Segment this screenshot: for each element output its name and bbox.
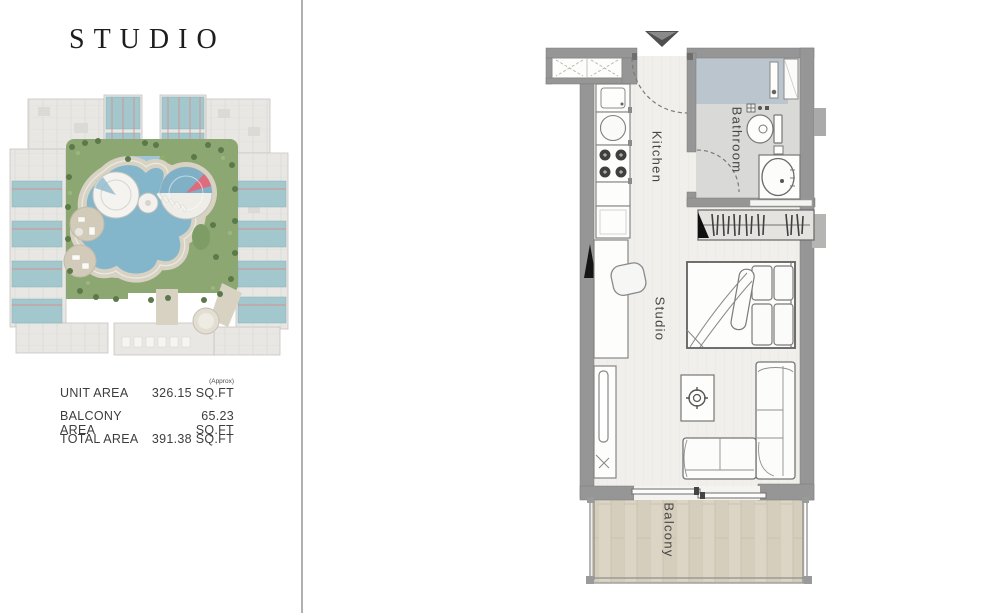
kitchen-counter [596, 84, 632, 238]
entry-closet [552, 58, 622, 78]
area-row-total: TOTAL AREA 391.38 SQ.FT [60, 432, 234, 447]
room-label-studio: Studio [653, 297, 668, 342]
site-landscape [64, 138, 242, 347]
area-row-balcony: BALCONY AREA 65.23 SQ.FT [60, 409, 234, 424]
shower-fixture [770, 62, 778, 98]
stove [596, 145, 630, 182]
room-label-bathroom: Bathroom [730, 107, 745, 174]
pillow [752, 266, 772, 300]
balcony-floor [592, 498, 804, 582]
panel-divider [301, 0, 303, 613]
site-plan-image [8, 93, 292, 357]
wash-basin [759, 155, 800, 199]
page-title: STUDIO [69, 24, 226, 56]
area-value: 391.38 SQ.FT [152, 432, 234, 446]
sliding-door [632, 486, 766, 500]
floor-plan: Kitchen Bathroom Studio Balcony [540, 25, 840, 600]
area-table: (Approx) UNIT AREA 326.15 SQ.FT BALCONY … [60, 386, 234, 455]
wardrobe [698, 210, 814, 240]
room-label-balcony: Balcony [662, 502, 677, 557]
area-row-unit: (Approx) UNIT AREA 326.15 SQ.FT [60, 386, 234, 401]
area-label: TOTAL AREA [60, 432, 139, 446]
bed [687, 262, 795, 348]
area-label: UNIT AREA [60, 386, 128, 400]
entry-arrow-icon [645, 31, 679, 47]
coffee-table [681, 375, 714, 421]
area-value: 326.15 SQ.FT [152, 386, 234, 400]
room-label-kitchen: Kitchen [650, 131, 665, 183]
area-note-approx: (Approx) [209, 378, 234, 385]
pillow [752, 304, 772, 345]
tv-console [594, 366, 616, 478]
desk [594, 240, 628, 358]
pillow [774, 266, 793, 300]
pillow [774, 304, 793, 345]
bathroom-niche [784, 59, 798, 99]
